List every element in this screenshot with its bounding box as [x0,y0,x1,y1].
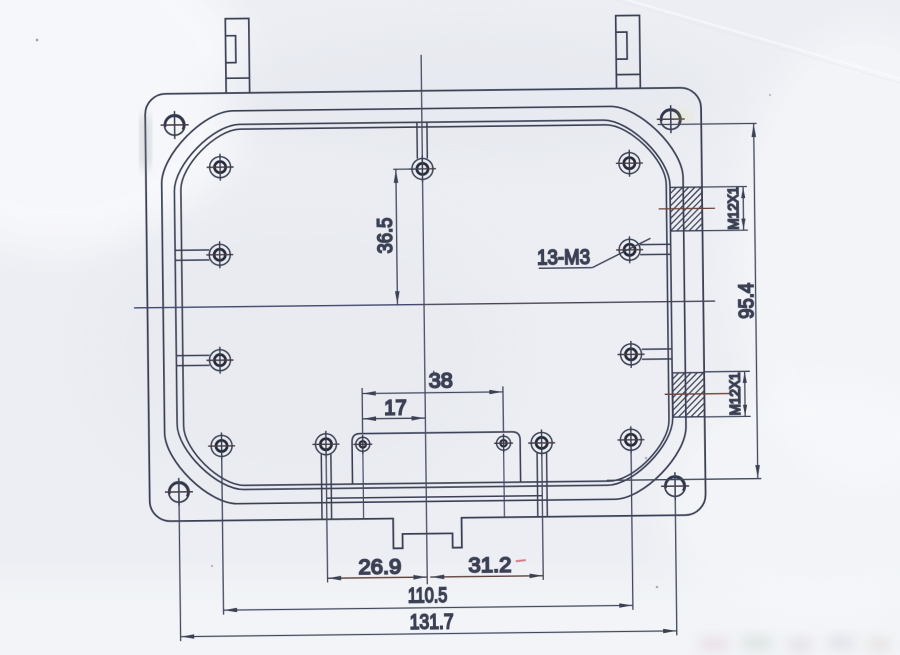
svg-text:131.7: 131.7 [410,611,454,635]
svg-text:95.4: 95.4 [735,282,758,319]
svg-text:110.5: 110.5 [408,584,448,607]
svg-text:26.9: 26.9 [358,556,401,580]
svg-text:36.5: 36.5 [374,217,397,253]
svg-text:31.2: 31.2 [468,554,511,578]
svg-text:M12X1: M12X1 [727,372,745,415]
svg-text:38: 38 [429,369,453,392]
svg-text:13-M3: 13-M3 [537,246,590,270]
svg-text:17: 17 [384,396,407,419]
svg-text:M12X1: M12X1 [725,187,743,230]
